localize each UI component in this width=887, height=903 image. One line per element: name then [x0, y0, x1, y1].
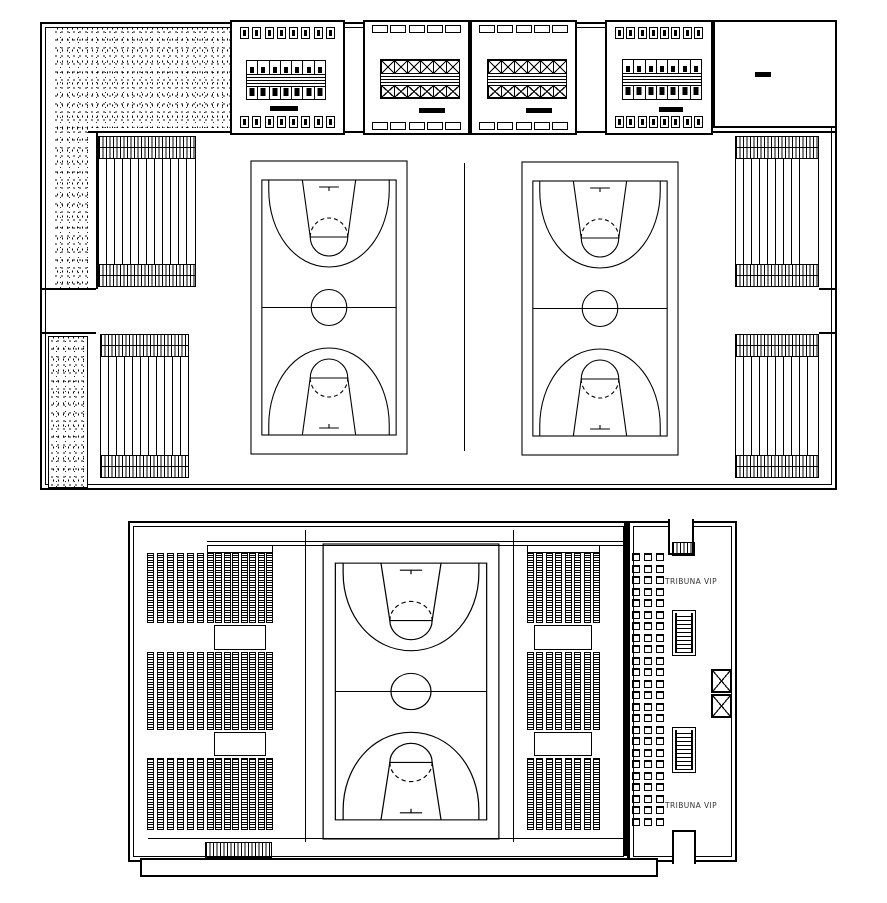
corridor-wall-left-top [42, 288, 96, 290]
window-strip-bottom [479, 122, 568, 130]
bench-seat [247, 75, 325, 86]
locker-room-2 [363, 20, 470, 135]
door-mat-mark [270, 106, 298, 111]
vip-seat-column [656, 553, 664, 830]
bottom-apron-slab [140, 858, 658, 877]
stair-bottom [205, 842, 272, 858]
locker-row-bottom [615, 116, 703, 128]
vomitory-right-1 [534, 625, 592, 650]
bench-stalls-bottom [623, 85, 701, 99]
tribune-left-outer-block-2 [147, 652, 204, 730]
bench-unit [622, 59, 702, 100]
basketball-court-right [521, 161, 679, 456]
x-locker-row-bottom [488, 85, 566, 99]
corridor-wall-left-bottom [42, 332, 96, 334]
window-strip-bottom [372, 122, 461, 130]
arena-basketball-court [322, 543, 500, 840]
vip-seat-column [644, 553, 652, 830]
bleacher-block-upper-left [98, 136, 196, 287]
stipple-strip-upper [53, 128, 88, 290]
vip-seat-column [632, 553, 640, 830]
bench-seat [381, 74, 459, 85]
empty-room [713, 20, 837, 128]
tribune-right-block-3 [527, 758, 600, 830]
shaft-box-upper [711, 669, 732, 693]
locker-room-4 [605, 20, 713, 135]
tribune-left-outer-block-1 [147, 553, 204, 623]
tribuna-vip-label-bottom: TRIBUNA VIP [665, 801, 717, 810]
tribune-left-inner-block-1 [207, 553, 273, 623]
window-strip-top [479, 25, 568, 33]
entrance-notch-bottom [672, 830, 696, 864]
vomitory-left-1 [214, 625, 266, 650]
bleacher-block-lower-left [100, 334, 189, 478]
tribune-left-inner-block-2 [207, 652, 273, 730]
bleacher-block-upper-right [735, 136, 819, 287]
x-locker-row-top [381, 60, 459, 74]
x-locker-row-bottom [381, 85, 459, 99]
door-mat-mark [659, 107, 683, 112]
locker-row-top [240, 27, 335, 39]
vomitory-left-2 [214, 732, 266, 756]
tribune-left-platform [207, 545, 273, 553]
vomitory-right-2 [534, 732, 592, 756]
x-locker-unit [487, 59, 567, 99]
court-divider-line [464, 163, 465, 451]
stair-vip-upper [672, 610, 696, 656]
tribuna-vip-label-top: TRIBUNA VIP [665, 577, 717, 586]
shaft-box-lower [711, 694, 732, 718]
bench-stalls-bottom [247, 86, 325, 100]
vip-seat-columns [632, 553, 664, 830]
tribune-right-block-1 [527, 553, 600, 623]
x-locker-row-top [488, 60, 566, 74]
bench-stalls-top [623, 60, 701, 74]
tribune-left-inner-block-3 [207, 758, 273, 830]
locker-room-1 [230, 20, 345, 135]
locker-room-3 [470, 20, 577, 135]
x-locker-unit [380, 59, 460, 99]
bleacher-block-lower-right [735, 334, 819, 478]
corridor-wall-right-top [819, 288, 835, 290]
door-mat-mark [755, 72, 771, 77]
locker-row-bottom [240, 116, 335, 128]
locker-row-top [615, 27, 703, 39]
thick-partition-wall [624, 523, 629, 856]
tribune-left-outer-block-3 [147, 758, 204, 830]
stair-vip-lower [672, 727, 696, 773]
door-mat-mark [419, 108, 445, 113]
bench-seat [488, 74, 566, 85]
tribune-right-block-2 [527, 652, 600, 730]
tribune-right-platform [527, 545, 600, 553]
bench-stalls-top [247, 61, 325, 75]
bench-seat [623, 74, 701, 85]
court-flank-wall-right [513, 530, 514, 842]
court-flank-wall-left [305, 530, 306, 842]
door-mat-mark [526, 108, 552, 113]
stipple-area-large [53, 28, 230, 128]
corridor-wall-right-bottom [819, 332, 835, 334]
stipple-strip-lower [48, 336, 88, 488]
window-strip-top [372, 25, 461, 33]
basketball-court-left [250, 160, 408, 455]
stair-wing-top [672, 542, 695, 556]
bench-unit [246, 60, 326, 100]
cad-floor-plan-canvas: TRIBUNA VIP TRIBUNA VIP [0, 0, 887, 903]
